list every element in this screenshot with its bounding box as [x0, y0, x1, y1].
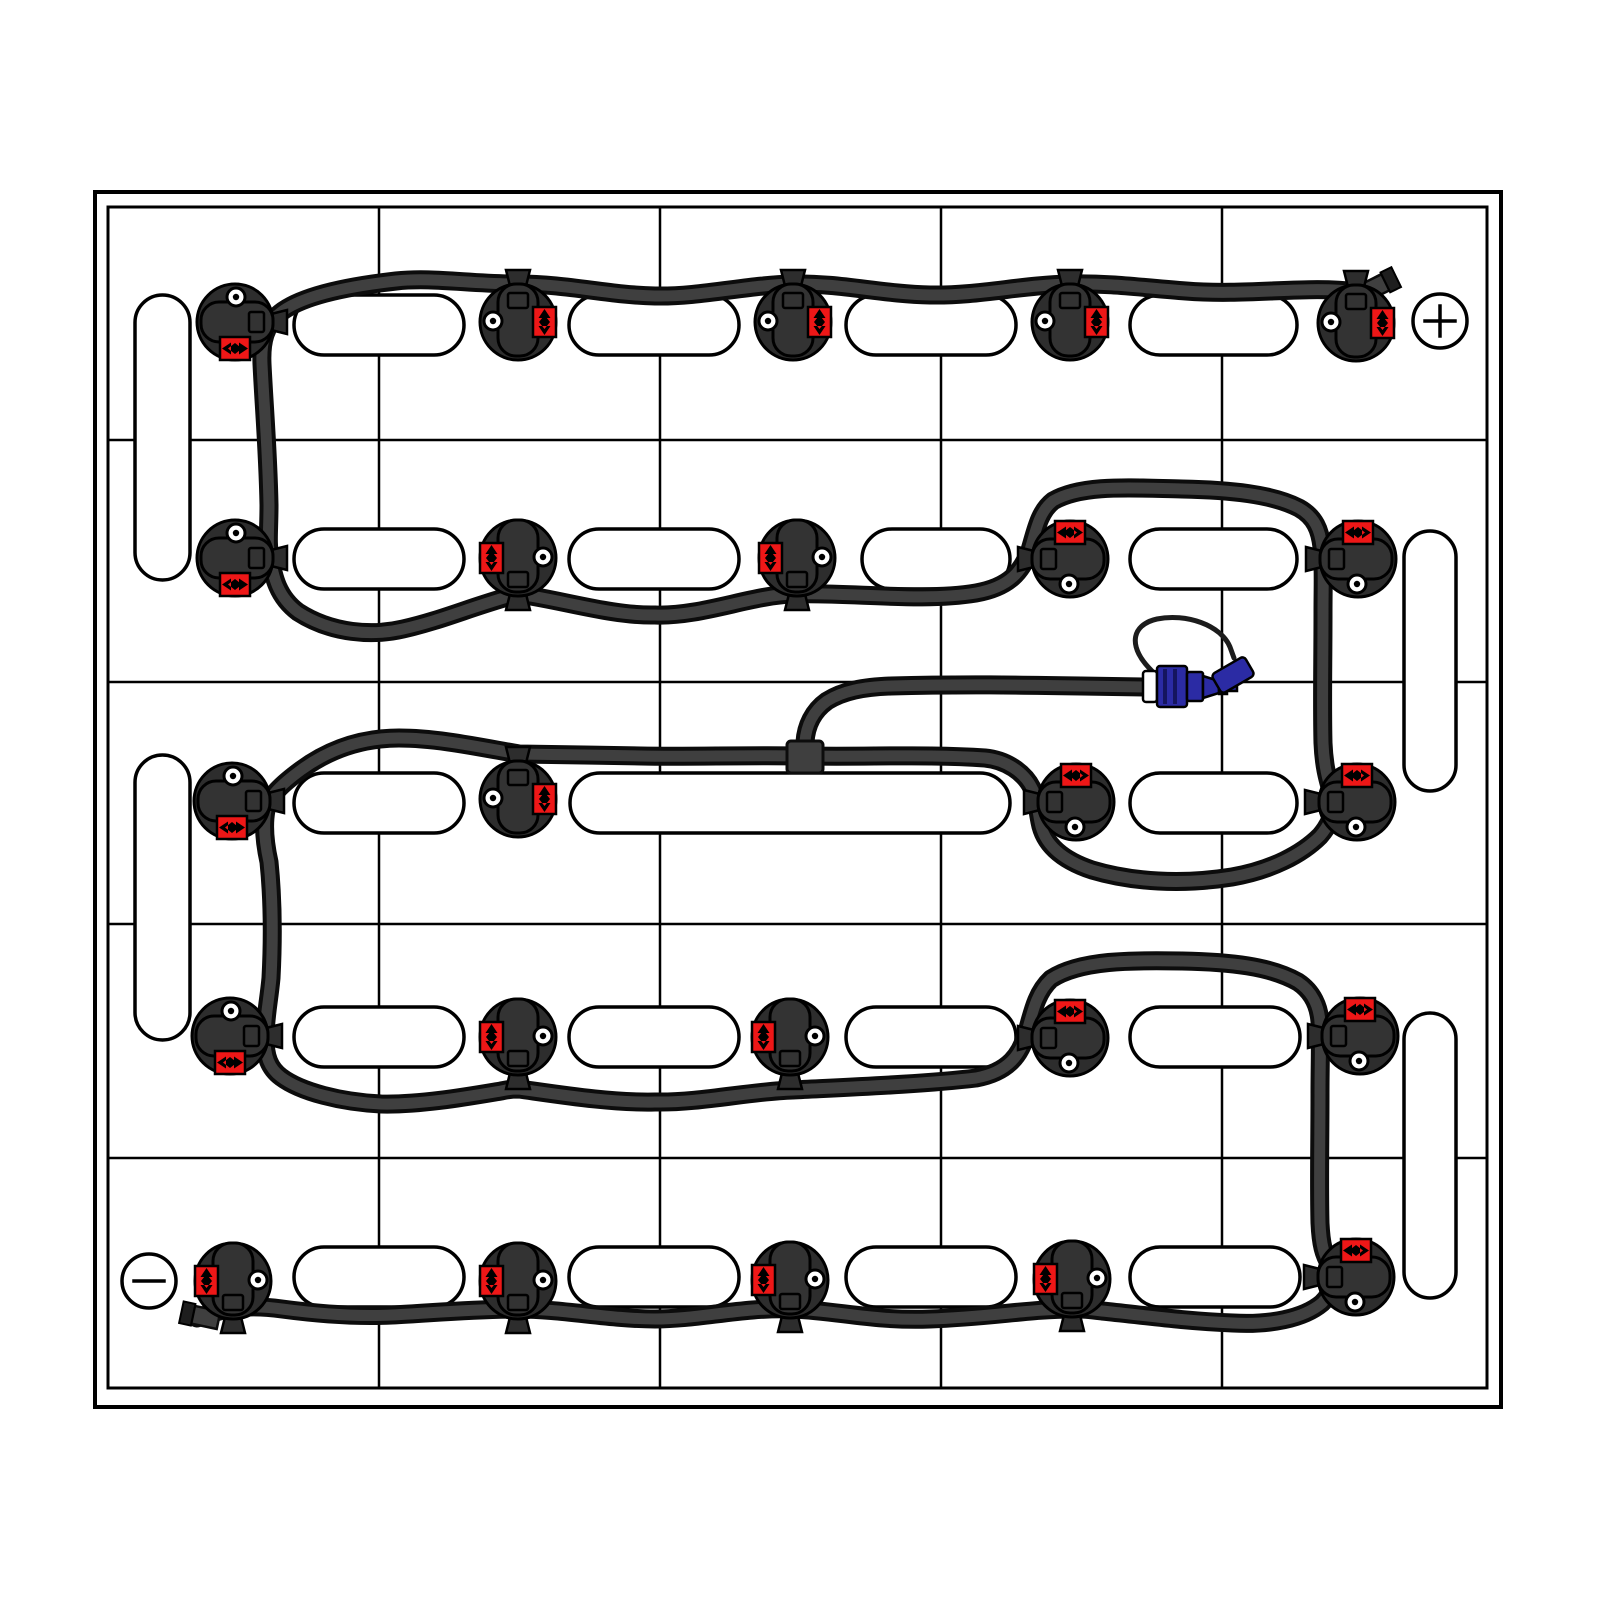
valve-cap-notch [1041, 1028, 1056, 1048]
valve-cap-notch [1331, 1026, 1346, 1046]
valve-sight-dot-center [540, 554, 546, 560]
valve-cap-notch [508, 572, 528, 587]
valve-sight-dot-center [233, 530, 239, 536]
valve-sight-dot-center [1072, 824, 1078, 830]
valve-cap-notch [1328, 792, 1343, 812]
cell-vent-pill [569, 1007, 739, 1067]
coupler-white-ring [1143, 671, 1157, 702]
coupler-ridge [1163, 669, 1167, 704]
positive-terminal-icon [1413, 294, 1467, 348]
valve-cap-notch [246, 791, 261, 811]
cell-vent-pill [294, 773, 464, 833]
valve-sight-dot-center [812, 1276, 818, 1282]
valve-sight-dot-center [1353, 824, 1359, 830]
valve-cap-notch [780, 1294, 800, 1309]
cell-vent-pill [1130, 1247, 1300, 1307]
valve-cap-notch [508, 293, 528, 308]
valve-cap-notch [1041, 549, 1056, 569]
cell-vent-pill [294, 1007, 464, 1067]
cell-vent-pill [569, 1247, 739, 1307]
cell-vent-pill [569, 529, 739, 589]
valve-cap-notch [244, 1026, 259, 1046]
tee-fitting [787, 741, 823, 773]
valve-sight-dot-center [812, 1033, 818, 1039]
valve-sight-dot-center [1066, 581, 1072, 587]
valve-cap-notch [508, 1051, 528, 1066]
valve-cap-notch [508, 1295, 528, 1310]
valve-cap-notch [780, 1051, 800, 1066]
valve-cap-notch [1060, 293, 1080, 308]
diagram-canvas [0, 0, 1600, 1600]
cell-vent-pill-vertical [1404, 1013, 1456, 1298]
valve-sight-dot-center [1066, 1060, 1072, 1066]
valve-sight-dot-center [233, 294, 239, 300]
cell-vent-pill [570, 773, 1010, 833]
valve-sight-dot-center [765, 318, 771, 324]
valve-sight-dot-center [540, 1033, 546, 1039]
battery-watering-diagram [0, 0, 1600, 1600]
valve-cap-notch [787, 572, 807, 587]
valve-cap-notch [223, 1295, 243, 1310]
valve-sight-dot-center [228, 1008, 234, 1014]
valve-cap-notch [508, 770, 528, 785]
cell-vent-pill [294, 1247, 464, 1307]
coupler-step [1187, 672, 1203, 701]
cell-vent-pill [1130, 529, 1297, 589]
valve-sight-dot-center [1042, 318, 1048, 324]
valve-sight-dot-center [490, 318, 496, 324]
cell-vent-pill [1130, 773, 1297, 833]
cell-vent-pill-vertical [1404, 531, 1456, 791]
cell-vent-pill [1130, 295, 1297, 355]
valve-cap-notch [1062, 1293, 1082, 1308]
valve-cap-notch [783, 293, 803, 308]
cell-vent-pill [846, 1007, 1016, 1067]
cell-vent-pill [846, 1247, 1016, 1307]
valve-sight-dot-center [1354, 581, 1360, 587]
valve-sight-dot-center [255, 1277, 261, 1283]
valve-cap-notch [1329, 549, 1344, 569]
coupler-body [1157, 666, 1187, 707]
valve-cap-notch [1047, 792, 1062, 812]
valve-sight-dot-center [1328, 319, 1334, 325]
cell-vent-pill-vertical [135, 755, 190, 1040]
cell-vent-pill-vertical [135, 295, 190, 580]
valve-cap-notch [1346, 294, 1366, 309]
valve-cap-notch [249, 312, 264, 332]
valve-sight-dot-center [819, 554, 825, 560]
valve-cap-notch [1327, 1267, 1342, 1287]
valve-sight-dot-center [540, 1277, 546, 1283]
valve-sight-dot-center [1356, 1058, 1362, 1064]
valve-sight-dot-center [230, 773, 236, 779]
valve-sight-dot-center [1094, 1275, 1100, 1281]
cell-vent-pill [862, 529, 1010, 589]
valve-sight-dot-center [1352, 1299, 1358, 1305]
valve-sight-dot-center [490, 795, 496, 801]
cell-vent-pill [1130, 1007, 1300, 1067]
coupler-ridge [1173, 669, 1177, 704]
negative-terminal-icon [122, 1254, 176, 1308]
cell-vent-pill [294, 529, 464, 589]
valve-cap-notch [249, 548, 264, 568]
